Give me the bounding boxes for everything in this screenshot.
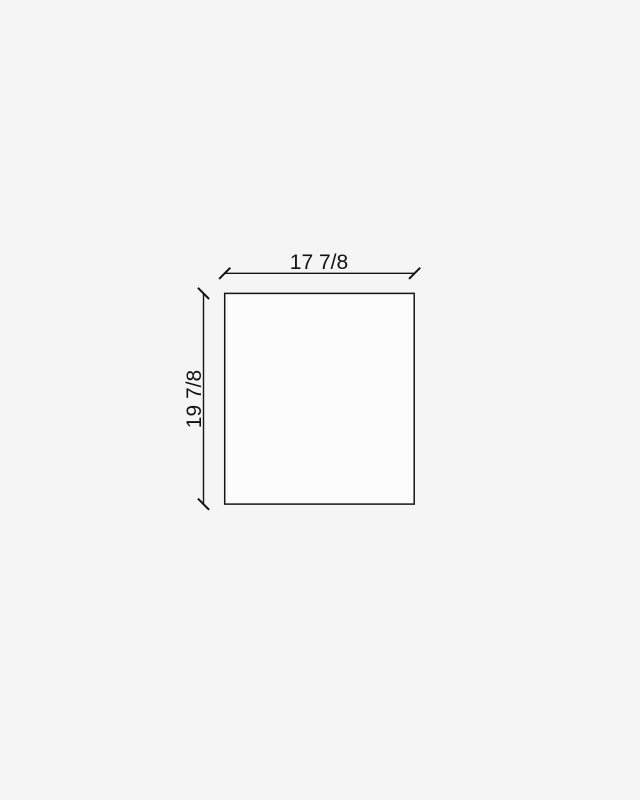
svg-text:17 7/8: 17 7/8 (290, 251, 348, 274)
svg-text:19 7/8: 19 7/8 (183, 370, 206, 428)
